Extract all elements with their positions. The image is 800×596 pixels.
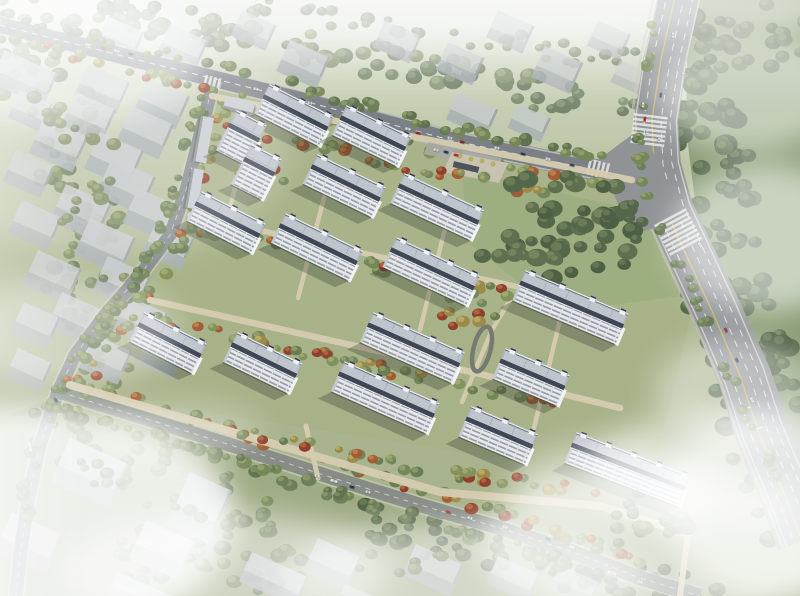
ornamental-tree	[490, 161, 495, 166]
top-haze	[0, 0, 800, 110]
ornamental-tree	[479, 158, 484, 163]
aerial-site-rendering	[0, 0, 800, 596]
fog-patch	[96, 402, 260, 462]
ornamental-tree	[468, 156, 473, 161]
rendering-canvas	[0, 0, 800, 596]
left-haze	[0, 0, 90, 596]
